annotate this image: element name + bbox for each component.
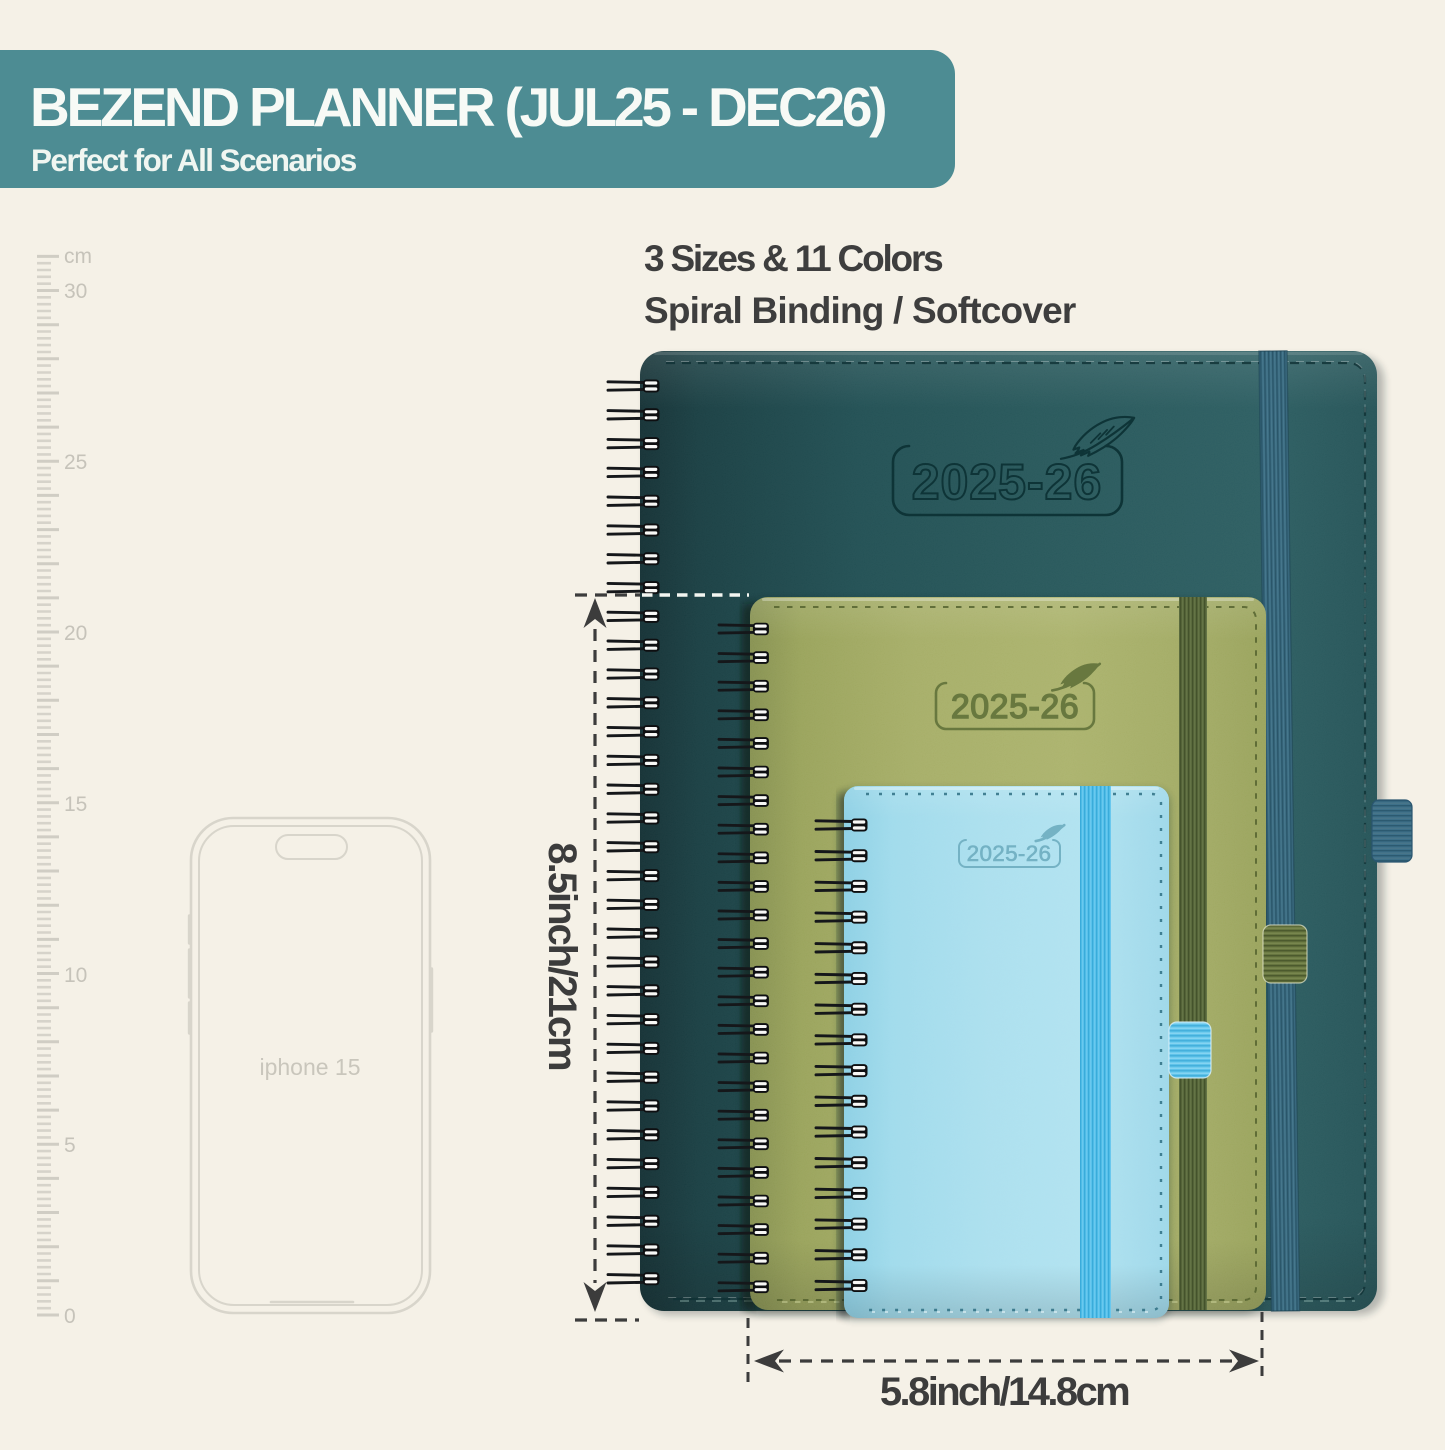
svg-text:2025-26: 2025-26: [912, 454, 1103, 510]
svg-text:iphone 15: iphone 15: [259, 1054, 360, 1080]
svg-text:25: 25: [64, 451, 87, 474]
svg-text:BEZEND PLANNER (JUL25 - DEC26): BEZEND PLANNER (JUL25 - DEC26): [30, 76, 885, 138]
svg-text:10: 10: [64, 964, 87, 987]
svg-text:5.8inch/14.8cm: 5.8inch/14.8cm: [880, 1370, 1129, 1414]
svg-text:2025-26: 2025-26: [951, 688, 1079, 726]
svg-text:2025-26: 2025-26: [967, 841, 1052, 866]
svg-text:0: 0: [64, 1305, 76, 1328]
svg-text:15: 15: [64, 793, 87, 816]
svg-text:30: 30: [64, 280, 87, 303]
svg-text:Perfect for All Scenarios: Perfect for All Scenarios: [31, 142, 357, 178]
svg-text:5: 5: [64, 1134, 76, 1157]
svg-text:20: 20: [64, 622, 87, 645]
svg-text:8.5inch/21cm: 8.5inch/21cm: [540, 842, 584, 1070]
svg-text:Spiral Binding / Softcover: Spiral Binding / Softcover: [644, 290, 1076, 331]
svg-text:cm: cm: [64, 245, 92, 268]
svg-text:3 Sizes & 11 Colors: 3 Sizes & 11 Colors: [644, 238, 943, 279]
